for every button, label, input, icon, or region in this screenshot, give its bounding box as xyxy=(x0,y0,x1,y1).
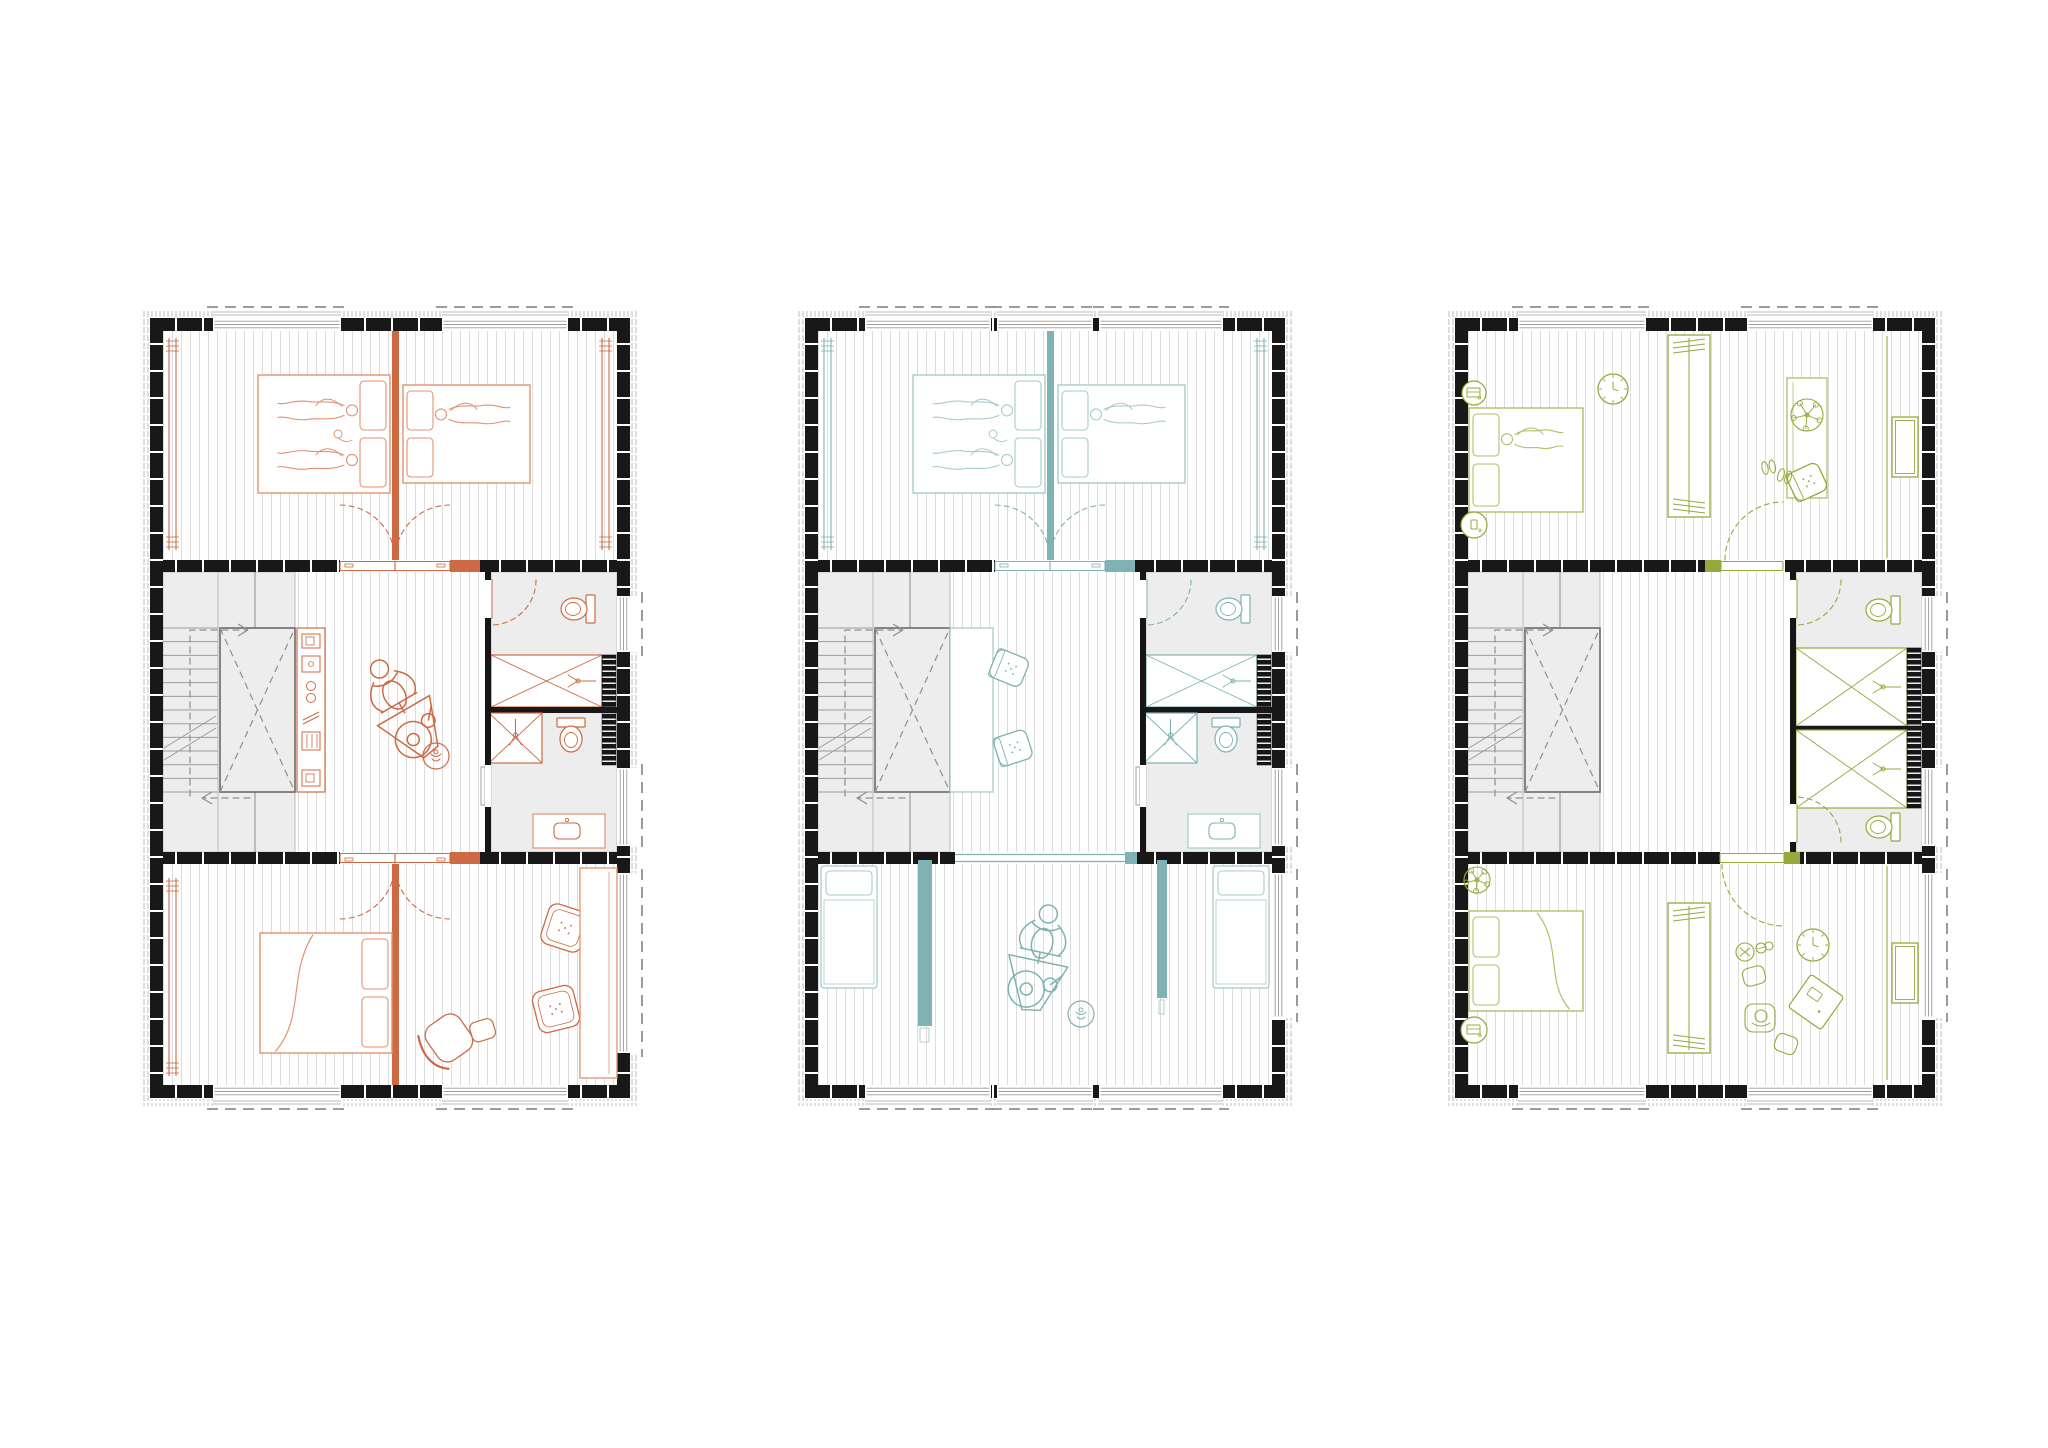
partition-icon xyxy=(1157,860,1167,1014)
floor-plan-sheet xyxy=(0,0,2048,1448)
clock-icon xyxy=(1598,374,1628,404)
bed-double-icon xyxy=(1058,385,1185,483)
cushion-icon xyxy=(531,984,582,1035)
wardrobe-icon xyxy=(1668,903,1710,1053)
floor-plan-drawing-orange xyxy=(136,304,644,1112)
table-round-icon xyxy=(1461,1017,1487,1043)
bed-double-icon xyxy=(260,933,392,1053)
table-round-icon xyxy=(1462,381,1486,405)
floor-plan-variant-teal xyxy=(791,304,1299,1112)
bed-double-icon xyxy=(913,375,1045,493)
bed-single-icon xyxy=(821,866,877,988)
bed-double-icon xyxy=(403,385,530,483)
bed-double-icon xyxy=(1469,911,1583,1011)
cushion-icon xyxy=(531,984,582,1035)
desk-table-icon xyxy=(950,628,993,792)
shelf-unit-icon xyxy=(297,628,325,792)
bed-single-icon xyxy=(1213,866,1269,988)
plan-root xyxy=(142,307,642,1109)
plan-root xyxy=(1447,307,1947,1109)
wall-shelf-icon xyxy=(1892,417,1918,477)
counter-icon xyxy=(580,868,617,1078)
floor-plan-drawing-green xyxy=(1441,304,1949,1112)
wardrobe-icon xyxy=(1668,335,1710,517)
bed-double-icon xyxy=(258,375,390,493)
floor-plan-drawing-teal xyxy=(791,304,1299,1112)
plan-root xyxy=(797,307,1297,1109)
table-round-icon xyxy=(1461,512,1487,538)
floor-plan-variant-green xyxy=(1441,304,1949,1112)
dividers xyxy=(1047,331,1054,560)
partition-icon xyxy=(918,860,932,1042)
floor-plan-variant-orange xyxy=(136,304,644,1112)
clock-icon xyxy=(1797,929,1829,961)
bed-double-icon xyxy=(1469,408,1583,512)
wall-shelf-icon xyxy=(1892,943,1918,1003)
